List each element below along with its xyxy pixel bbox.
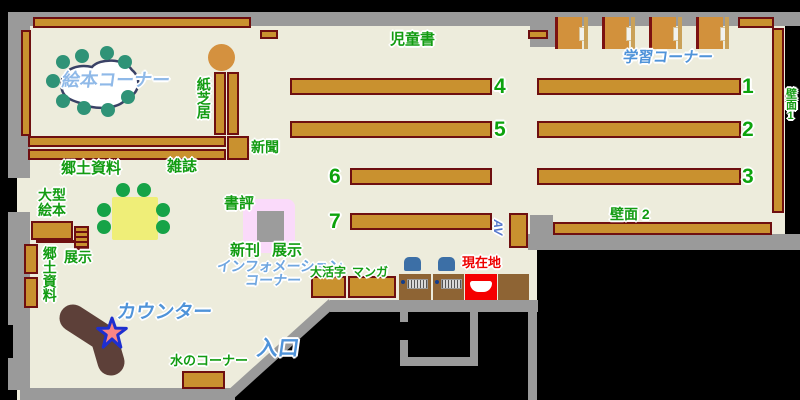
- label-shelf-1: 1: [742, 76, 754, 98]
- shelf-top-wall: [33, 17, 251, 28]
- stool: [118, 55, 132, 69]
- label-shelf-2: 2: [742, 119, 754, 141]
- label-you-are-here: 現在地: [462, 256, 501, 270]
- shelf-6: [350, 168, 492, 185]
- label-display-center: 展示: [272, 243, 302, 259]
- stool: [77, 101, 91, 115]
- shelf-ogata-ehon: [31, 221, 73, 240]
- study-desk: [602, 17, 635, 49]
- mouse-icon: [435, 280, 439, 284]
- shelf-4: [290, 78, 492, 95]
- label-shelf-7: 7: [329, 211, 341, 233]
- chair: [97, 220, 111, 234]
- shelf-2: [537, 121, 741, 138]
- shelf-kyodo-left-1: [24, 244, 38, 274]
- stool: [121, 90, 135, 104]
- shelf-kyodo-left-2: [24, 277, 38, 308]
- label-childrens-books: 児童書: [390, 32, 435, 48]
- service-desk-box: [498, 274, 529, 300]
- shelf-kyodo-row-1: [28, 136, 226, 147]
- label-shelf-6: 6: [329, 166, 341, 188]
- reading-table: [112, 197, 158, 240]
- keyboard-icon: [441, 279, 462, 289]
- library-floor-map: 児童書 絵本コーナー 紙芝居 新聞 郷土資料 雑誌 学習コーナー 壁面1 壁面 …: [0, 0, 800, 400]
- shelf-3: [537, 168, 741, 185]
- shelf-stub-left: [260, 30, 278, 39]
- label-local-materials-left: 郷土資料: [42, 246, 57, 326]
- chair: [137, 183, 151, 197]
- shelf-water-corner: [182, 371, 225, 389]
- chair: [156, 203, 170, 217]
- label-shelf-4: 4: [494, 76, 506, 98]
- stool: [100, 46, 114, 60]
- label-magazines: 雑誌: [167, 159, 197, 175]
- label-wall-1: 壁面1: [784, 88, 796, 144]
- stool: [75, 49, 89, 63]
- label-entrance: 入口: [255, 338, 300, 360]
- shelf-large-print: [311, 276, 346, 298]
- shelf-7: [350, 213, 492, 230]
- shelf-left-wall: [21, 30, 31, 136]
- chair: [116, 183, 130, 197]
- shelf-hekimen2: [553, 222, 772, 235]
- shelf-1: [537, 78, 741, 95]
- label-manga: マンガ: [352, 266, 388, 279]
- label-shelf-3: 3: [742, 166, 754, 188]
- label-local-materials-top: 郷土資料: [61, 161, 121, 177]
- shelf-5: [290, 121, 492, 138]
- label-wall-2: 壁面 2: [610, 207, 650, 222]
- shelf-av: [509, 213, 528, 248]
- mouse-icon: [401, 280, 405, 284]
- stool: [56, 94, 70, 108]
- display-rack: [74, 226, 89, 250]
- opac-chair-1: [404, 257, 421, 271]
- study-desk: [649, 17, 682, 49]
- label-large-picture-books: 大型絵本: [38, 188, 70, 217]
- round-table: [208, 44, 235, 71]
- shelf-manga: [348, 276, 396, 298]
- label-book-review: 書評: [224, 196, 254, 212]
- label-shelf-5: 5: [494, 119, 506, 141]
- chair: [156, 220, 170, 234]
- study-desk: [555, 17, 588, 49]
- label-display-left: 展示: [64, 250, 92, 265]
- label-kamishibai: 紙芝居: [196, 77, 211, 137]
- label-study-corner: 学習コーナー: [622, 50, 714, 66]
- label-picture-book-corner: 絵本コーナー: [61, 71, 172, 90]
- label-information-line2: コーナー: [244, 273, 302, 288]
- label-large-print: 大活字: [310, 266, 346, 279]
- stool: [56, 55, 70, 69]
- shelf-newspaper: [227, 136, 249, 160]
- label-newspaper: 新聞: [251, 140, 279, 155]
- label-water-corner: 水のコーナー: [170, 354, 248, 368]
- shelf-kamishibai-2: [227, 72, 239, 135]
- study-desk: [696, 17, 729, 49]
- shelf-hekimen1: [772, 28, 784, 213]
- stool: [101, 103, 115, 117]
- shelf-stub-right: [528, 30, 548, 39]
- shelf-top-right-corner: [738, 17, 774, 28]
- chair: [97, 203, 111, 217]
- label-new-books: 新刊: [230, 243, 260, 259]
- label-av: AV: [492, 219, 505, 235]
- new-books-display-stand: [257, 211, 284, 242]
- keyboard-icon: [407, 279, 428, 289]
- shelf-kamishibai-1: [214, 72, 226, 135]
- opac-chair-2: [438, 257, 455, 271]
- stool: [46, 74, 60, 88]
- label-counter: カウンター: [116, 303, 214, 323]
